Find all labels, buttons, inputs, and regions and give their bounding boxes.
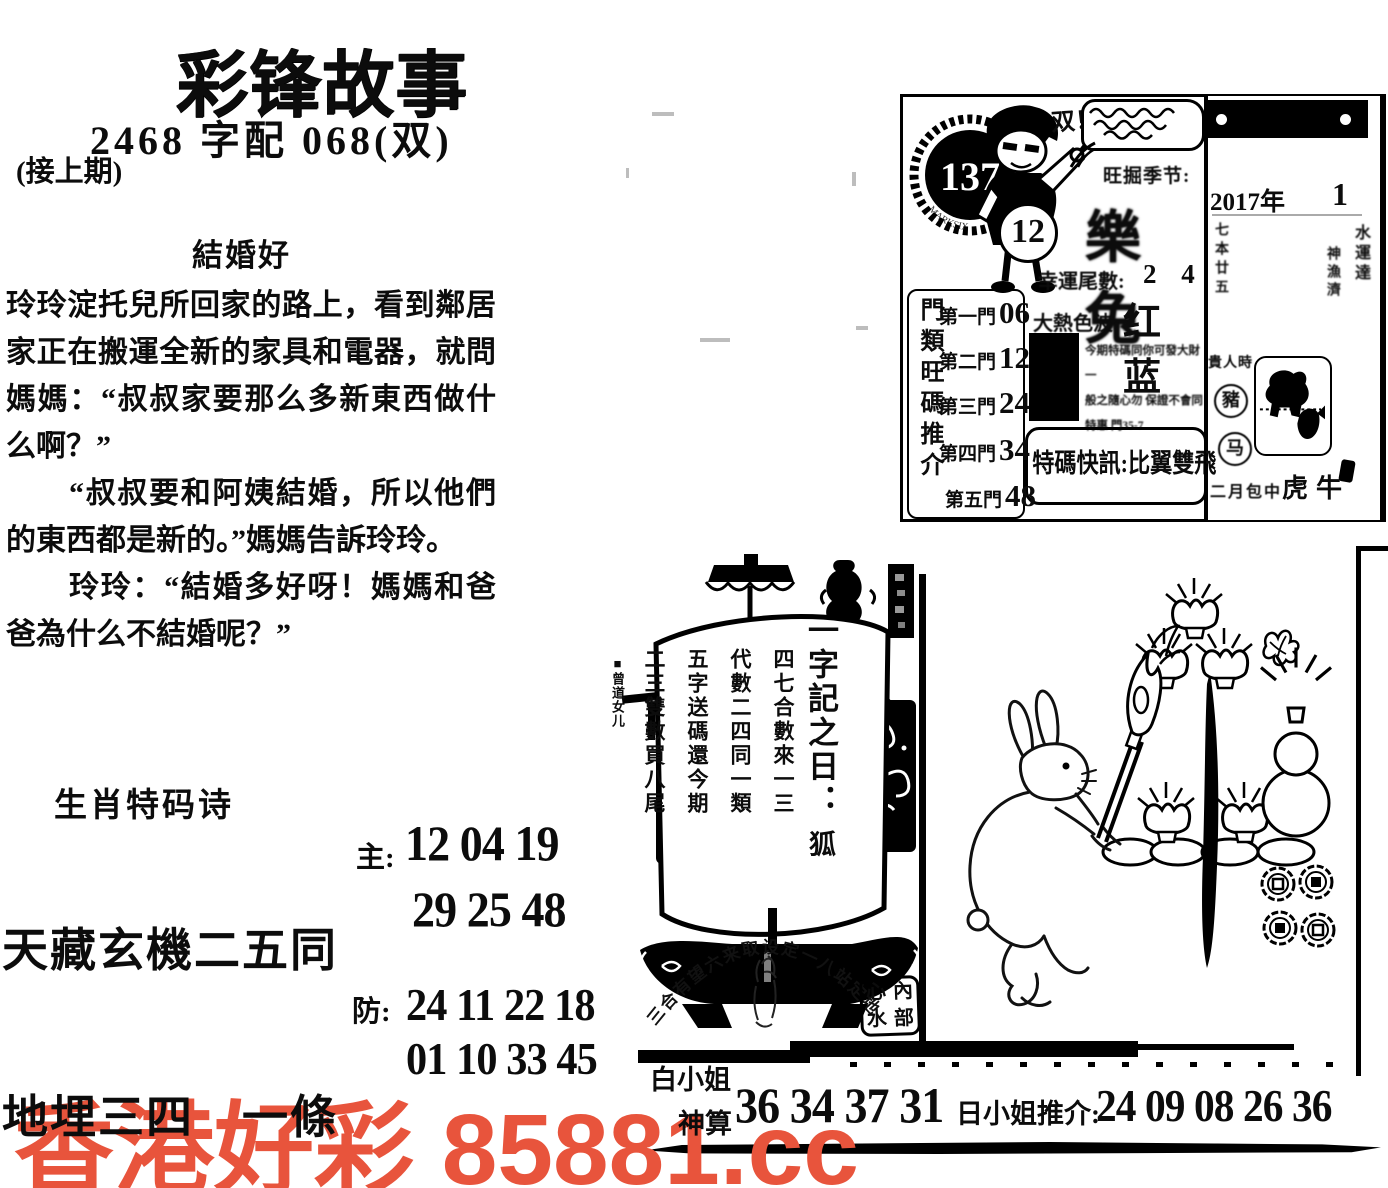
- gate-label: 第五門: [945, 490, 1002, 511]
- scan-speck: [856, 326, 868, 330]
- story-title: 結婚好: [192, 230, 291, 275]
- svg-text:三合有望六来取设定一八站定地: 三合有望六来取设定一八站定地: [644, 938, 885, 1029]
- scan-speck: [852, 172, 856, 186]
- zodiac-horse-badge: 马: [1218, 432, 1252, 466]
- notice-line: 般之隨心勿 保證不會同: [1085, 389, 1203, 414]
- gate-number: 34: [999, 432, 1030, 467]
- gate-number: 06: [999, 295, 1030, 330]
- arc-caption-text: 三合有望六来取设定一八站定地: [644, 938, 885, 1029]
- sail-verse-line: 五字送碼還今期: [682, 648, 712, 880]
- gate-number: 24: [999, 385, 1030, 420]
- tipsheet-page: 香港好彩 85881.cc 彩锋故事 2468 字配 068(双) (接上期) …: [0, 0, 1388, 1188]
- calendar-right-column-2: 神漁濟: [1322, 246, 1342, 300]
- main-label: 主:: [356, 834, 395, 876]
- divider-bar-thin: [1136, 1044, 1294, 1050]
- gate-row: 第四門34: [939, 432, 1030, 468]
- guard-label: 防:: [352, 988, 391, 1030]
- seal-char: 部: [890, 1006, 918, 1033]
- gate-label: 第二門: [939, 352, 996, 373]
- sail-signature: ■曾道女儿: [608, 648, 627, 880]
- rabbit-candle-illustration: [926, 576, 1358, 1040]
- issue-info-box: 137 MARKSIX 12 双！: [900, 94, 1208, 522]
- seal-char: 水: [863, 1007, 891, 1034]
- season-label: 旺掘季节:: [1103, 161, 1190, 188]
- gate-row: 第一門06: [939, 295, 1030, 331]
- day-lady-label: 日小姐推介:: [956, 1092, 1100, 1131]
- frame-left-border: [919, 574, 926, 1044]
- lady-white-numbers: 36 34 37 31: [735, 1076, 943, 1134]
- lucky-tail-value: 2 4: [1143, 259, 1204, 290]
- calendar-bottom-note: 二月包中: [1210, 478, 1282, 502]
- coin-icons: [1262, 866, 1334, 946]
- dotted-rule: [850, 1062, 1346, 1067]
- subtitle: 2468 字配 068(双): [90, 108, 453, 166]
- story-body: 玲玲淀托兒所回家的路上，看到鄰居家正在搬運全新的家具和電器，就問媽媽：“叔叔家要…: [6, 282, 496, 658]
- arc-caption: 三合有望六来取设定一八站定地: [638, 912, 898, 1047]
- calendar-right-column-1: 水運達: [1348, 224, 1372, 284]
- day-lady-numbers: 24 09 08 26 36: [1096, 1080, 1332, 1132]
- animal-silhouettes-icon: [1256, 358, 1325, 449]
- speech-bubble: [1081, 99, 1205, 151]
- sail-verse-line: 代數二四同一類: [725, 648, 755, 880]
- continued-note: (接上期): [16, 148, 122, 190]
- sail-headline: 一字記之日：: [803, 614, 838, 818]
- scan-speck: [652, 112, 674, 116]
- lucky-tail-label: 幸運尾數:: [1038, 265, 1125, 294]
- scribble-icon: [1084, 102, 1196, 142]
- notice-text: 今期特碼同你可發大財一 般之隨心勿 保證不會同 特惠 門35-7: [1085, 339, 1203, 439]
- seal-char: 心: [862, 979, 890, 1008]
- calendar-left-strip: 七本廿五: [1210, 222, 1230, 298]
- gate-label: 第一門: [939, 307, 996, 328]
- story-paragraph-2: “叔叔要和阿姨結婚，所以他們的東西都是新的。”媽媽告訴玲玲。: [6, 470, 496, 564]
- seal-char: 內: [889, 978, 917, 1007]
- scan-speck: [626, 168, 629, 178]
- bubble-tail-icon: [1069, 141, 1097, 169]
- frame-top-cap: [1356, 546, 1388, 551]
- gate-label: 第四門: [939, 444, 996, 465]
- gate-row: 第五門48: [945, 478, 1036, 514]
- calendar-hanger-bar: [1208, 100, 1368, 138]
- rabbit-figure: [968, 691, 1120, 1005]
- calendar-card: 2017年 1 七本廿五 水運達 神漁濟 貴人時 豬 马 二月包中 虎牛: [1204, 94, 1386, 522]
- special-tip-box: 特碼快訊:比翼雙飛: [1025, 427, 1207, 505]
- hanger-hole-icon: [1216, 114, 1227, 125]
- poem-line: 地埋三四 一條: [2, 1090, 338, 1146]
- noble-hour-label: 貴人時: [1208, 352, 1253, 372]
- story-paragraph-3: 玲玲：“結婚多好呀！媽媽和爸爸為什么不結婚呢？”: [6, 564, 496, 658]
- sail-verse-columns: 四七合數來一三 代數二四同一類 五字送碼還今期 二三雙數買八尾 ■曾道女儿: [612, 648, 798, 880]
- gate-number: 12: [999, 340, 1030, 375]
- gate-label: 第三門: [939, 397, 996, 418]
- hanger-hole-icon: [1340, 114, 1351, 125]
- god-calc-label: 神算: [678, 1102, 732, 1141]
- lady-white-label: 白小姐: [650, 1058, 731, 1097]
- sail-answer: 狐: [801, 818, 840, 860]
- main-numbers-1: 12 04 19: [405, 814, 559, 872]
- inner-water-seal: 心 內 水 部: [859, 975, 921, 1037]
- special-tip-text: 特碼快訊:比翼雙飛: [1028, 430, 1178, 498]
- guard-numbers-1: 24 11 22 18: [406, 978, 595, 1031]
- story-paragraph-1: 玲玲淀托兒所回家的路上，看到鄰居家正在搬運全新的家具和電器，就問媽媽：“叔叔家要…: [6, 282, 496, 470]
- small-animal-doodle-icon: [754, 956, 776, 1027]
- calendar-day: 1: [1332, 176, 1348, 213]
- zodiac-silhouette-box: [1254, 356, 1332, 456]
- hot-wave-label: 大熱色波:: [1033, 307, 1120, 336]
- black-square-block: [1029, 333, 1079, 421]
- main-numbers-2: 29 25 48: [412, 880, 566, 938]
- gate-recommend-box: 門類旺碼推介 第一門06 第二門12 第三門24 第四門34 第五門48: [907, 289, 1025, 519]
- calendar-year: 2017年: [1210, 182, 1285, 218]
- poem-lines: 天藏玄機二五同 地埋三四 一條 單三雙六重出擊 紅波四零七八奪 一二重復帶八開 …: [2, 812, 338, 1188]
- poem-line: 天藏玄機二五同: [2, 923, 338, 979]
- calendar-ink-blob: [1338, 459, 1356, 483]
- sail-headline-column: 一字記之日：狐: [798, 614, 843, 866]
- guard-numbers-2: 01 10 33 45: [406, 1032, 597, 1085]
- sail-verse-line: 四七合數來一三: [768, 648, 798, 880]
- calendar-rule: [1212, 214, 1362, 216]
- gate-number: 48: [1005, 478, 1036, 513]
- notice-line: 今期特碼同你可發大財一: [1085, 339, 1203, 389]
- gate-row: 第三門24: [939, 385, 1030, 421]
- sail-verse-line: 二三雙數買八尾: [639, 648, 669, 880]
- gate-row: 第二門12: [939, 340, 1030, 376]
- ball-number: 12: [998, 203, 1058, 263]
- zodiac-pig-badge: 豬: [1214, 384, 1248, 418]
- scan-speck: [700, 338, 730, 342]
- candelabra-pole: [1202, 672, 1218, 968]
